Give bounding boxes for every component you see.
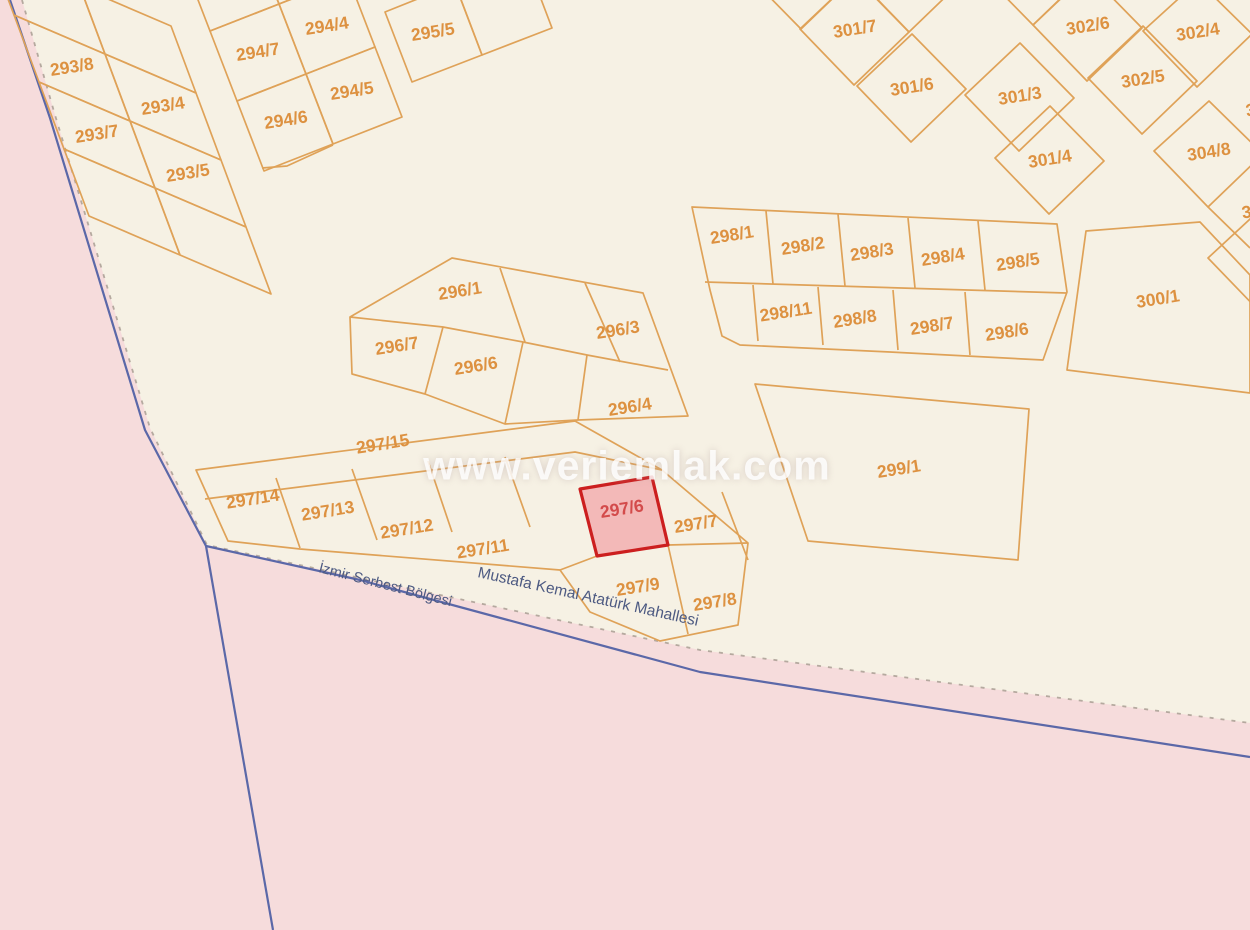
map-canvas: 293/8293/4293/7293/5294/7294/4294/6294/5…: [0, 0, 1250, 930]
cadastral-map: 293/8293/4293/7293/5294/7294/4294/6294/5…: [0, 0, 1250, 930]
